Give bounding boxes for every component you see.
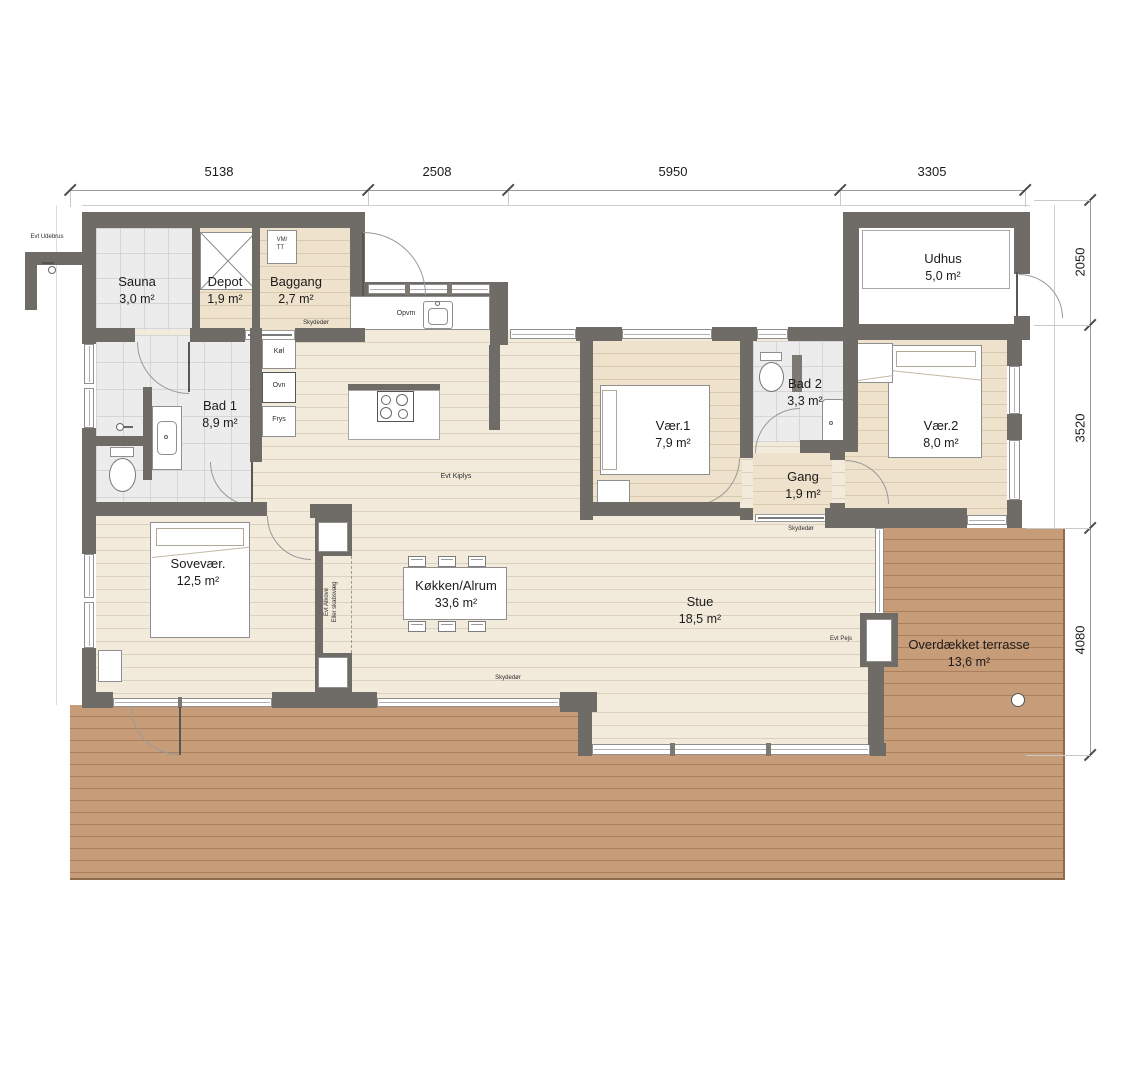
terrace-deck-right xyxy=(884,528,1064,705)
floor-stue-bay xyxy=(592,700,874,745)
annotation-opvm: Opvm xyxy=(397,310,416,317)
wall xyxy=(843,324,1030,340)
bed-pillow xyxy=(602,390,617,470)
door-leaf xyxy=(179,707,181,755)
bed-pillow xyxy=(896,351,976,367)
room-label-sovevaer: Sovevær. 12,5 m² xyxy=(171,555,226,591)
chair xyxy=(438,556,456,567)
annotation-vm-tt: VM/ TT xyxy=(277,236,288,253)
dim-ext xyxy=(368,191,369,205)
wall xyxy=(560,692,597,712)
window xyxy=(84,554,94,598)
door-arc xyxy=(363,232,426,295)
wall xyxy=(82,228,96,328)
wall-shower xyxy=(143,387,152,480)
burner-icon xyxy=(381,395,391,405)
window xyxy=(967,515,1007,525)
wall xyxy=(310,504,352,518)
door-arc xyxy=(1019,274,1063,318)
wall xyxy=(96,502,267,516)
window xyxy=(757,329,788,339)
annotation-evt-kiplys: Evt Kiplys xyxy=(441,473,472,480)
window xyxy=(84,602,94,648)
wall xyxy=(843,212,1030,228)
dim-ext xyxy=(840,191,841,205)
outdoor-shower-wall xyxy=(25,265,37,310)
dimension-line-top xyxy=(70,190,1025,191)
annotation-kol: Køl xyxy=(274,348,285,355)
window xyxy=(113,698,272,707)
wall xyxy=(1007,340,1022,366)
wall-shower xyxy=(96,436,143,446)
dim-label-top-4: 3305 xyxy=(918,164,947,179)
alkove-box xyxy=(318,657,348,688)
room-label-kokken: Køkken/Alrum 33,6 m² xyxy=(415,577,497,613)
window xyxy=(84,344,94,384)
faucet-icon xyxy=(435,301,440,306)
terrace-deck-bottom xyxy=(70,705,1064,880)
annotation-evt-udebrus: Evt Udebrus xyxy=(30,234,63,240)
wall xyxy=(82,428,96,554)
alkove-dashed-line xyxy=(351,556,352,653)
wall xyxy=(843,340,858,452)
burner-icon xyxy=(380,407,392,419)
toilet-icon xyxy=(109,458,136,492)
window xyxy=(622,329,712,339)
dim-ext xyxy=(1034,200,1090,201)
window-mullion xyxy=(670,743,675,756)
roof-line-left xyxy=(56,205,57,705)
dim-ext xyxy=(1025,191,1026,207)
dim-ext xyxy=(70,191,71,207)
chair xyxy=(408,621,426,632)
wall xyxy=(82,328,96,344)
drain-icon xyxy=(829,421,833,425)
wall xyxy=(192,228,200,328)
room-label-stue: Stue 18,5 m² xyxy=(679,593,721,629)
drain-icon xyxy=(164,435,168,439)
wall xyxy=(252,228,260,328)
toilet-tank xyxy=(760,352,782,361)
window xyxy=(84,388,94,428)
toilet-icon xyxy=(759,362,784,392)
shower-head-icon xyxy=(116,423,124,431)
shower-arm xyxy=(124,426,133,428)
bed-pillow xyxy=(156,528,244,546)
wall xyxy=(578,712,592,743)
wall xyxy=(576,327,622,341)
shower-head-icon xyxy=(48,266,56,274)
deck-edge-right xyxy=(1063,528,1065,880)
dim-label-right-2: 3520 xyxy=(1073,414,1088,443)
dimension-line-right xyxy=(1090,200,1091,755)
roof-line-top xyxy=(82,205,1030,206)
door-leaf xyxy=(1016,272,1018,316)
room-label-baggang: Baggang 2,7 m² xyxy=(270,273,322,309)
room-label-bad1: Bad 1 8,9 m² xyxy=(202,397,237,433)
sliding-glass-door xyxy=(377,698,560,707)
floor-plan: 5138 2508 5950 3305 2050 3520 4080 Sauna… xyxy=(0,0,1130,1080)
annotation-evt-pejs: Evt Pejs xyxy=(830,636,852,642)
toilet-tank xyxy=(110,447,134,457)
room-label-gang: Gang 1,9 m² xyxy=(785,468,820,504)
kitchen-counter xyxy=(350,296,490,330)
dim-ext xyxy=(1026,755,1090,756)
sliding-glass-door xyxy=(592,744,870,755)
wall xyxy=(272,692,377,708)
terrace-post xyxy=(1011,693,1025,707)
outdoor-shower-wall xyxy=(25,252,85,265)
dim-label-top-2: 2508 xyxy=(423,164,452,179)
wall xyxy=(315,556,323,653)
wall xyxy=(868,667,884,745)
sliding-door-line xyxy=(758,517,824,519)
dim-ext xyxy=(1034,325,1090,326)
chair xyxy=(468,556,486,567)
alkove-box xyxy=(318,522,348,552)
wall xyxy=(190,328,245,342)
wall xyxy=(825,508,967,528)
wall xyxy=(82,212,365,228)
room-label-depot: Depot 1,9 m² xyxy=(207,273,242,309)
burner-icon xyxy=(396,394,408,406)
wall xyxy=(1014,212,1030,274)
annotation-skydedor: Skydedør xyxy=(495,675,521,681)
wall xyxy=(843,212,859,340)
dim-ext xyxy=(508,191,509,205)
room-label-terrasse: Overdækket terrasse 13,6 m² xyxy=(908,636,1029,672)
dim-label-top-3: 5950 xyxy=(659,164,688,179)
wall xyxy=(593,502,740,516)
room-label-udhus: Udhus 5,0 m² xyxy=(924,250,962,286)
window xyxy=(1009,440,1020,500)
shower-arm xyxy=(42,262,54,264)
wall xyxy=(1007,500,1022,528)
dim-label-right-1: 2050 xyxy=(1073,248,1088,277)
wall xyxy=(580,341,593,520)
wall xyxy=(788,327,845,341)
dim-label-top-1: 5138 xyxy=(205,164,234,179)
fireplace-box xyxy=(866,619,892,662)
window xyxy=(875,528,884,614)
dim-ext xyxy=(1026,528,1090,529)
wall xyxy=(295,328,365,342)
wall xyxy=(830,452,845,460)
wall xyxy=(578,743,592,756)
annotation-skydedor: Skydedør xyxy=(303,320,329,326)
chair xyxy=(438,621,456,632)
room-label-vaer2: Vær.2 8,0 m² xyxy=(923,417,958,453)
wall xyxy=(82,692,113,708)
nightstand xyxy=(98,650,122,682)
wall xyxy=(712,327,757,341)
window xyxy=(1009,366,1020,414)
wall xyxy=(490,282,508,345)
roof-line-right xyxy=(1054,205,1055,528)
kitchen-sink-basin xyxy=(428,308,448,325)
annotation-ovn: Ovn xyxy=(273,382,286,389)
wall xyxy=(740,341,753,458)
wall-duct xyxy=(489,345,500,430)
wall xyxy=(740,508,753,520)
deck-edge-bottom xyxy=(70,878,1064,880)
chair xyxy=(408,556,426,567)
wall xyxy=(1007,414,1022,440)
dim-label-right-3: 4080 xyxy=(1073,626,1088,655)
annotation-skydedor: Skydedør xyxy=(788,526,814,532)
room-label-sauna: Sauna 3,0 m² xyxy=(118,273,156,309)
burner-icon xyxy=(398,409,408,419)
chair xyxy=(468,621,486,632)
wall xyxy=(250,328,262,462)
window-mullion xyxy=(766,743,771,756)
window-mullion xyxy=(447,283,452,295)
annotation-evt-alkove: Evt Alkove Eller skabsvæg xyxy=(324,581,340,622)
room-label-bad2: Bad 2 3,3 m² xyxy=(787,375,822,411)
annotation-frys: Frys xyxy=(272,416,286,423)
room-label-vaer1: Vær.1 7,9 m² xyxy=(655,417,690,453)
window xyxy=(510,329,576,339)
